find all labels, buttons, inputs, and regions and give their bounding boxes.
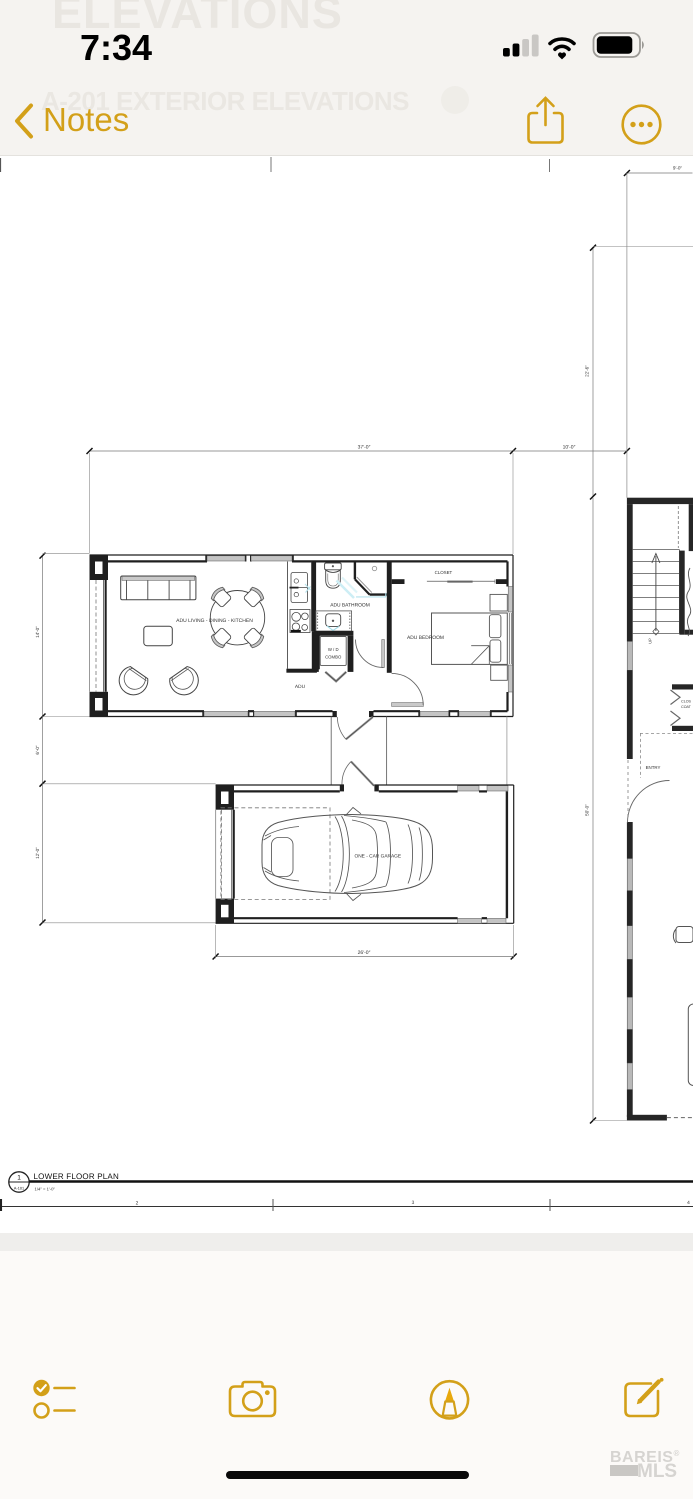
svg-text:1/4″ = 1′-0″: 1/4″ = 1′-0″ bbox=[35, 1187, 56, 1192]
svg-text:1: 1 bbox=[17, 1175, 21, 1182]
svg-text:ADU: ADU bbox=[295, 684, 306, 690]
svg-text:6′-0″: 6′-0″ bbox=[35, 745, 40, 755]
svg-text:3: 3 bbox=[412, 1200, 415, 1206]
svg-text:ADU BATHROOM: ADU BATHROOM bbox=[330, 602, 370, 608]
svg-text:9′-0″: 9′-0″ bbox=[673, 166, 683, 171]
svg-text:ADU BEDROOM: ADU BEDROOM bbox=[407, 635, 444, 641]
svg-text:COMBO: COMBO bbox=[325, 654, 342, 659]
svg-text:CLOS: CLOS bbox=[681, 700, 691, 704]
svg-text:4: 4 bbox=[687, 1200, 690, 1206]
svg-text:22′-6″: 22′-6″ bbox=[585, 365, 590, 377]
svg-text:14′-0″: 14′-0″ bbox=[35, 626, 40, 638]
svg-text:LOWER FLOOR PLAN: LOWER FLOOR PLAN bbox=[34, 1172, 119, 1181]
svg-text:A-101: A-101 bbox=[14, 1187, 24, 1191]
svg-text:37′-0″: 37′-0″ bbox=[358, 445, 371, 451]
svg-text:ENTRY: ENTRY bbox=[646, 765, 661, 770]
svg-text:W / D: W / D bbox=[328, 647, 339, 652]
svg-text:50′-0″: 50′-0″ bbox=[585, 804, 590, 816]
svg-text:12′-0″: 12′-0″ bbox=[35, 847, 40, 859]
svg-text:UP: UP bbox=[648, 638, 653, 644]
svg-text:CLOSET: CLOSET bbox=[435, 570, 453, 575]
svg-text:COAT: COAT bbox=[681, 705, 692, 709]
svg-text:10′-0″: 10′-0″ bbox=[563, 445, 576, 451]
svg-text:26′-0″: 26′-0″ bbox=[358, 950, 371, 956]
svg-text:ADU LIVING - DINING - KITCHEN: ADU LIVING - DINING - KITCHEN bbox=[176, 618, 253, 624]
svg-text:2: 2 bbox=[136, 1201, 139, 1207]
